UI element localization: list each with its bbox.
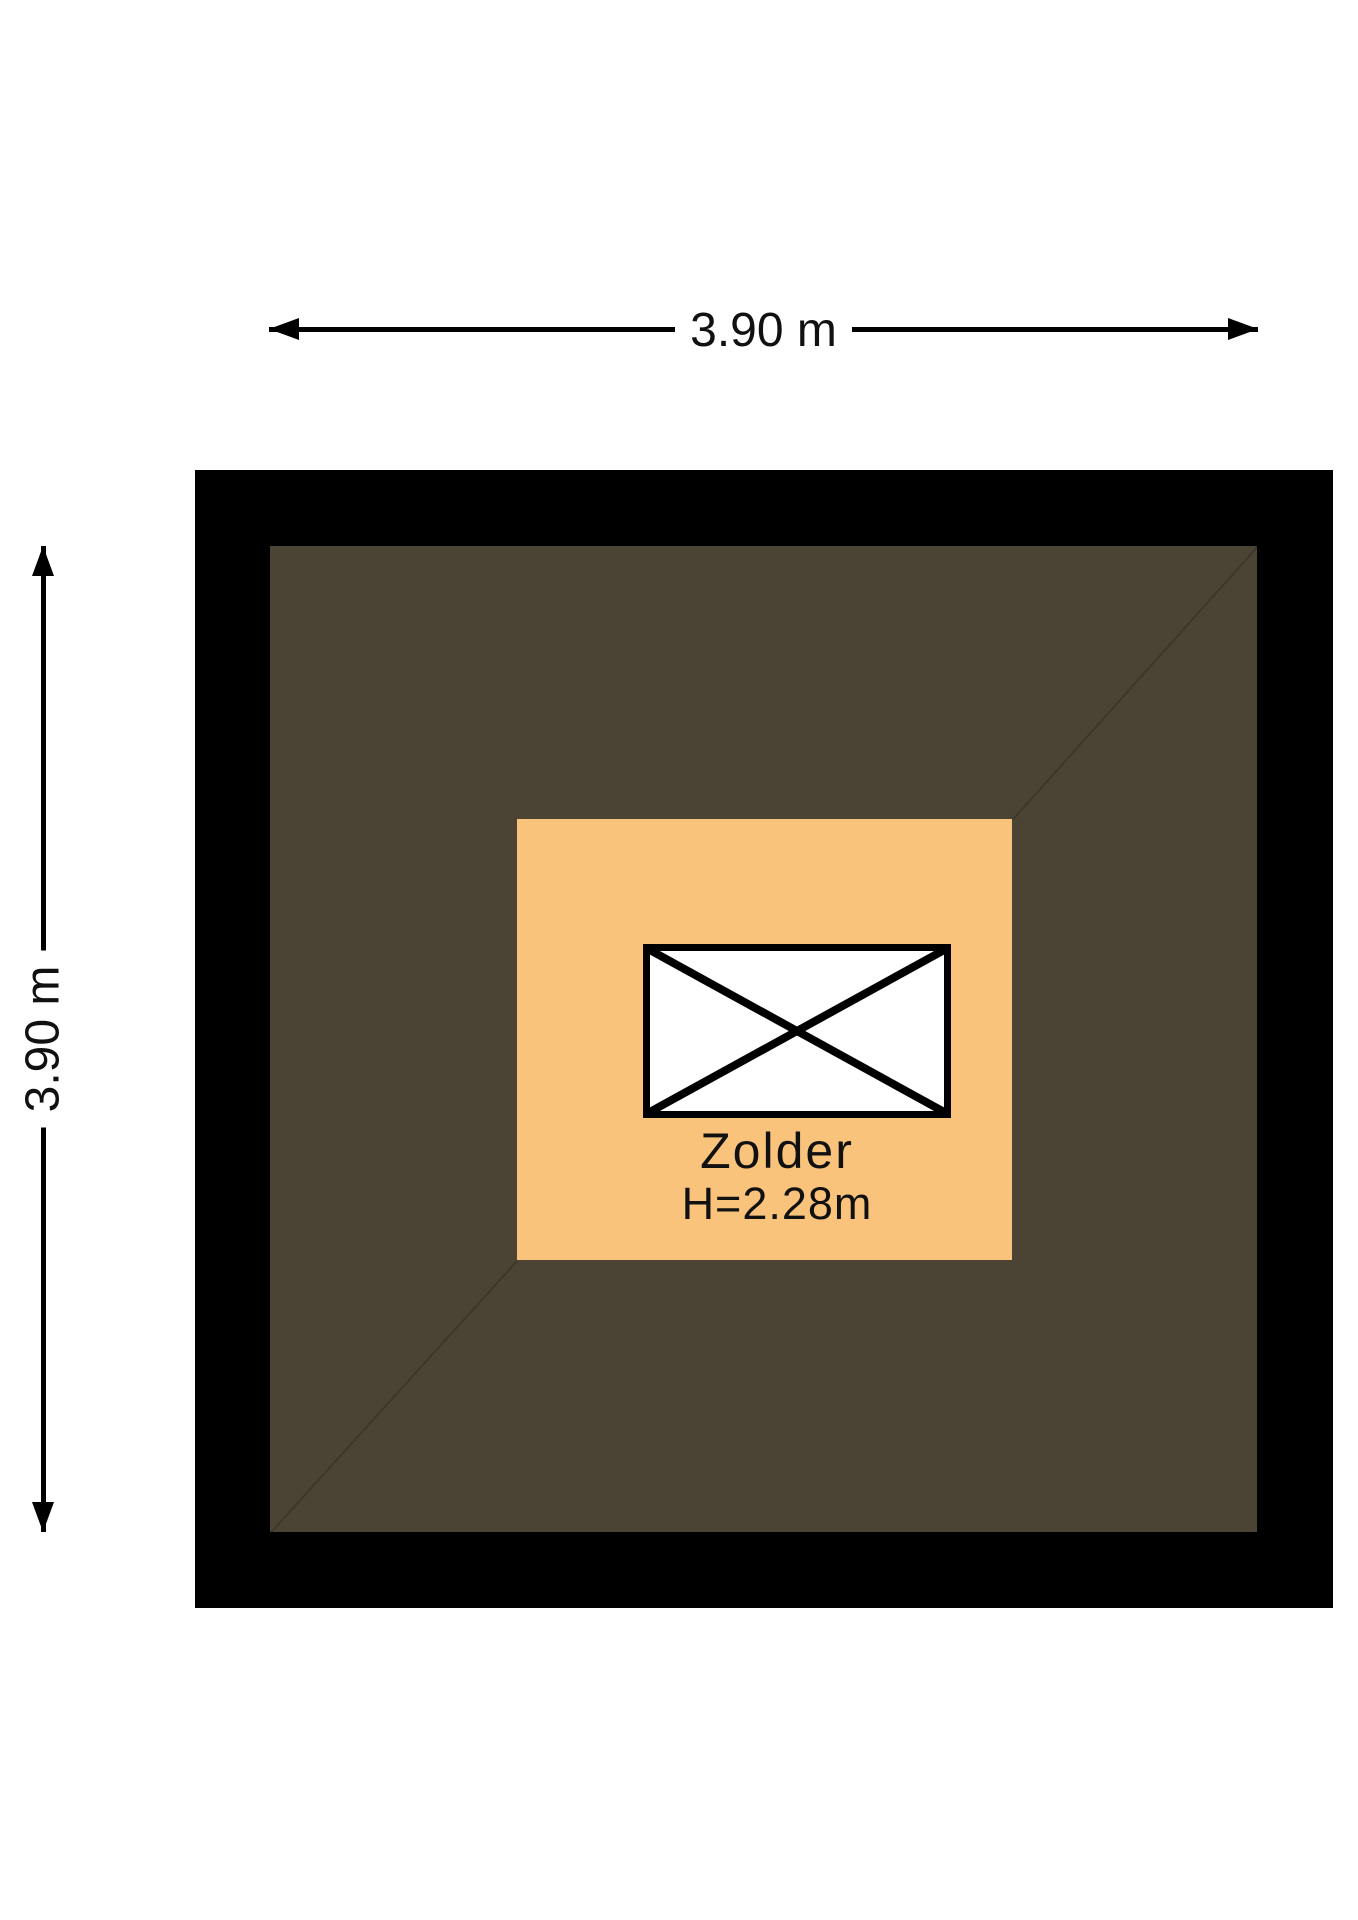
top-dimension-label: 3.90 m: [675, 305, 852, 357]
stair-opening-icon: [643, 944, 951, 1118]
arrow-up-icon: [32, 546, 54, 576]
left-dimension-label: 3.90 m: [17, 951, 69, 1128]
arrow-left-icon: [269, 318, 299, 340]
arrow-right-icon: [1228, 318, 1258, 340]
room-ceiling-height-label: H=2.28m: [597, 1182, 957, 1226]
floorplan-page: 3.90 m 3.90 m Zolder H=2.28m: [0, 0, 1358, 1920]
room-name-label: Zolder: [597, 1126, 957, 1176]
arrow-down-icon: [32, 1502, 54, 1532]
